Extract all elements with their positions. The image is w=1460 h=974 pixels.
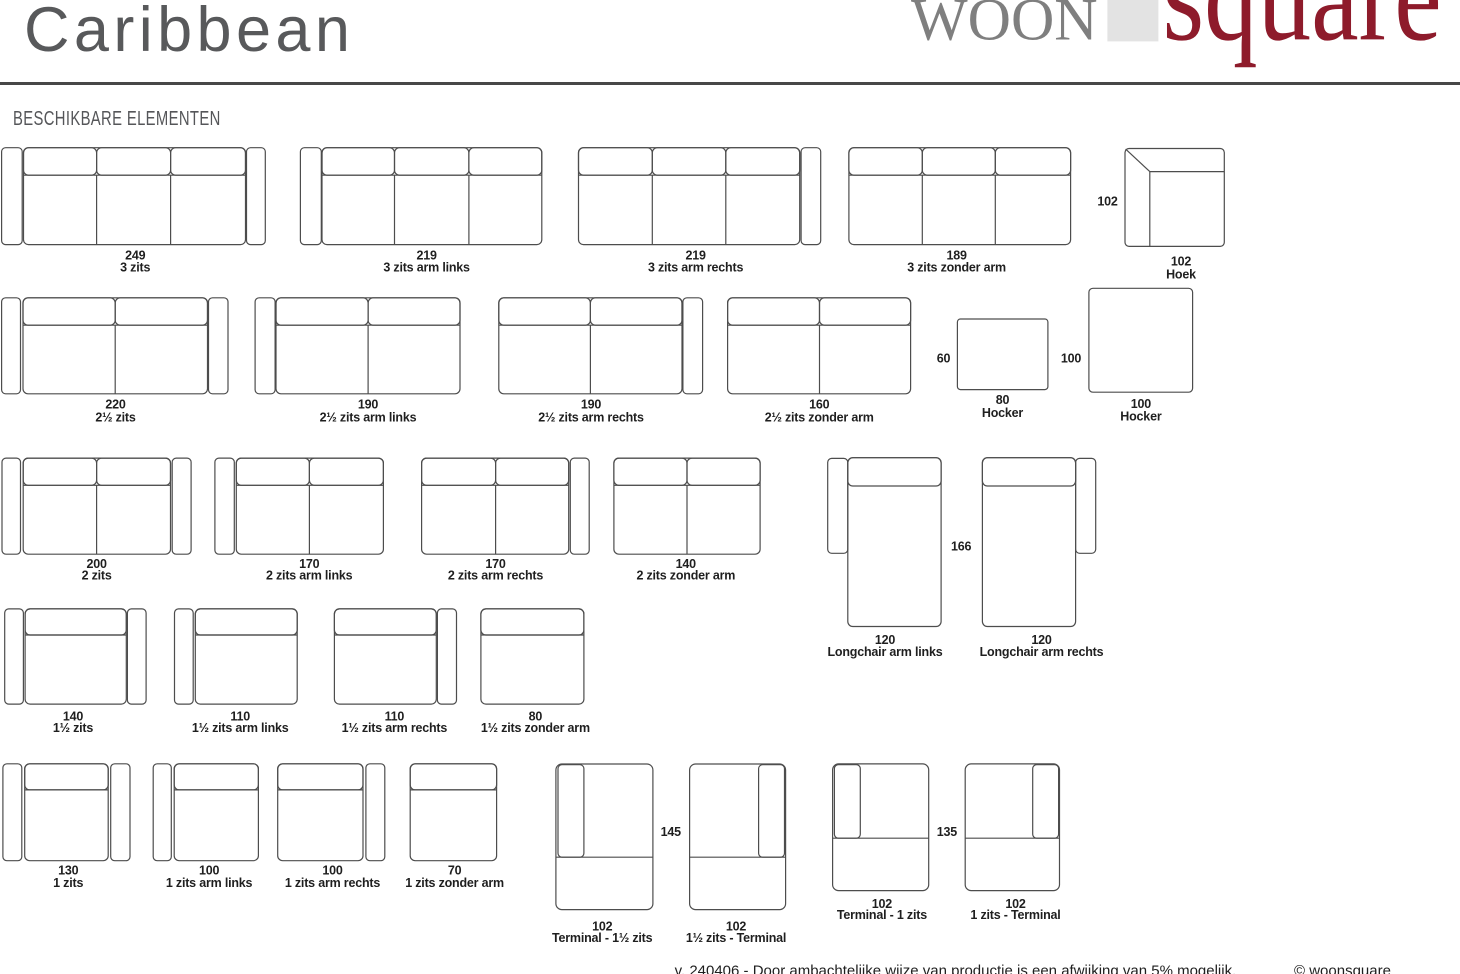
svg-text:v. 240406 - Door ambachtelijke: v. 240406 - Door ambachtelijke wijze van… xyxy=(675,963,1237,974)
svg-text:166: 166 xyxy=(951,540,972,554)
svg-text:100: 100 xyxy=(1061,352,1082,366)
svg-text:1 zits - Terminal: 1 zits - Terminal xyxy=(970,908,1060,922)
svg-text:3 zits arm links: 3 zits arm links xyxy=(383,261,470,275)
svg-text:2½ zits zonder arm: 2½ zits zonder arm xyxy=(765,411,874,425)
svg-text:1½ zits arm links: 1½ zits arm links xyxy=(192,721,289,735)
svg-text:102: 102 xyxy=(1097,195,1118,209)
svg-text:1½ zits - Terminal: 1½ zits - Terminal xyxy=(686,931,786,945)
svg-text:3 zits zonder arm: 3 zits zonder arm xyxy=(907,261,1006,275)
svg-text:WOON: WOON xyxy=(911,0,1098,52)
svg-text:145: 145 xyxy=(661,825,682,839)
svg-text:1½ zits zonder arm: 1½ zits zonder arm xyxy=(481,721,590,735)
svg-text:Longchair arm links: Longchair arm links xyxy=(828,645,943,659)
svg-text:2½ zits arm rechts: 2½ zits arm rechts xyxy=(538,411,644,425)
svg-text:190: 190 xyxy=(358,398,379,412)
svg-text:3 zits: 3 zits xyxy=(120,261,150,275)
svg-text:Longchair arm rechts: Longchair arm rechts xyxy=(980,645,1104,659)
svg-text:220: 220 xyxy=(105,398,126,412)
svg-text:2½ zits: 2½ zits xyxy=(95,411,136,425)
svg-text:135: 135 xyxy=(937,825,958,839)
svg-text:Hocker: Hocker xyxy=(982,406,1024,420)
svg-text:Terminal - 1½ zits: Terminal - 1½ zits xyxy=(552,931,653,945)
svg-text:1 zits zonder arm: 1 zits zonder arm xyxy=(405,876,504,890)
svg-text:1½ zits: 1½ zits xyxy=(53,721,94,735)
svg-text:2 zits zonder arm: 2 zits zonder arm xyxy=(636,568,735,582)
svg-text:2 zits: 2 zits xyxy=(82,568,112,582)
svg-text:square: square xyxy=(1163,0,1442,68)
svg-text:160: 160 xyxy=(809,398,830,412)
svg-text:Hoek: Hoek xyxy=(1166,268,1196,282)
svg-text:1½ zits arm rechts: 1½ zits arm rechts xyxy=(342,721,448,735)
svg-text:190: 190 xyxy=(581,398,602,412)
svg-text:2 zits arm rechts: 2 zits arm rechts xyxy=(448,568,544,582)
svg-text:2 zits arm links: 2 zits arm links xyxy=(266,568,353,582)
svg-text:102: 102 xyxy=(1171,255,1192,269)
svg-text:2½ zits arm links: 2½ zits arm links xyxy=(320,411,417,425)
svg-text:Terminal - 1 zits: Terminal - 1 zits xyxy=(837,908,927,922)
svg-text:1 zits arm rechts: 1 zits arm rechts xyxy=(285,876,381,890)
svg-text:Hocker: Hocker xyxy=(1120,410,1162,424)
svg-text:1 zits arm links: 1 zits arm links xyxy=(166,876,253,890)
svg-text:1 zits: 1 zits xyxy=(53,876,83,890)
svg-text:60: 60 xyxy=(937,352,951,366)
svg-text:© woonsquare: © woonsquare xyxy=(1294,963,1391,974)
svg-text:3 zits arm rechts: 3 zits arm rechts xyxy=(648,261,744,275)
